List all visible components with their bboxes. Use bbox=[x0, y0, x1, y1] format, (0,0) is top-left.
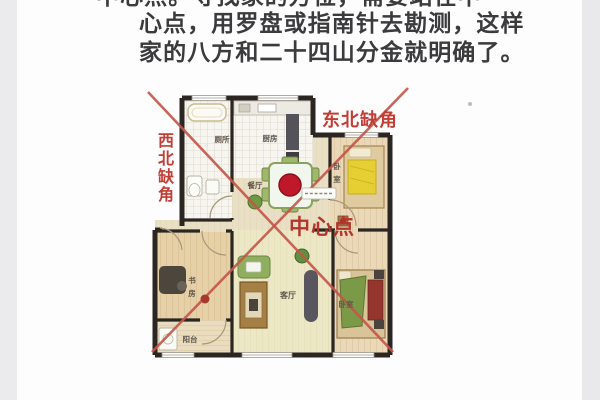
center-tag bbox=[302, 188, 336, 199]
window bbox=[242, 353, 292, 358]
label-northwest-missing: 北 bbox=[158, 149, 174, 168]
article-line-3: 家的八方和二十四山分金就明确了。 bbox=[139, 42, 525, 65]
floorplan-figure: 厕所 厨房 餐厅 卧 室 书 房 阳台 客厅 卧室 西 北 缺 角 东北缺角 中… bbox=[130, 80, 430, 370]
kitchen-sink bbox=[258, 104, 276, 112]
label-northeast-missing: 东北缺角 bbox=[322, 109, 398, 131]
tall-cabinet bbox=[304, 270, 318, 322]
coffee-table bbox=[246, 262, 261, 272]
window bbox=[192, 96, 226, 101]
window bbox=[258, 96, 298, 101]
room-label-bedroom-se: 卧室 bbox=[339, 299, 354, 309]
article-line-2: 心点，用罗盘或指南针去勘测，这样 bbox=[139, 13, 525, 36]
bed-se-runner bbox=[368, 280, 383, 320]
room-label-bedroom-ne: 卧 bbox=[333, 161, 341, 171]
page-right-margin-strip bbox=[582, 0, 600, 400]
room-label-balcony: 阳台 bbox=[183, 334, 198, 344]
diagonal-knot-dot bbox=[201, 295, 210, 304]
label-center-point: 中心点 bbox=[289, 215, 355, 239]
balcony-washer bbox=[159, 328, 177, 350]
bathtub bbox=[188, 104, 226, 121]
bed-ne-blanket bbox=[348, 160, 376, 194]
page-artifact-dot bbox=[468, 102, 472, 106]
label-northwest-missing: 西 bbox=[158, 131, 174, 150]
article-line-1-partial: 中心点。寻找家的方位，需要站在中 bbox=[96, 0, 482, 9]
room-label-study: 房 bbox=[188, 288, 196, 298]
wash-basin bbox=[206, 180, 219, 194]
kitchen-stove bbox=[239, 104, 250, 112]
page-left-margin-strip bbox=[0, 0, 17, 400]
center-point-dot bbox=[279, 174, 301, 196]
bedside-table-se bbox=[374, 320, 384, 329]
floorplan-svg: 厕所 厨房 餐厅 卧 室 书 房 阳台 客厅 卧室 西 北 缺 角 东北缺角 中… bbox=[130, 80, 430, 370]
label-northwest-missing: 角 bbox=[158, 185, 174, 204]
kitchen-cabinet-tall bbox=[286, 114, 299, 150]
tv-screen bbox=[249, 299, 258, 311]
window bbox=[333, 353, 374, 358]
room-label-kitchen: 厨房 bbox=[263, 133, 278, 143]
study-chair bbox=[177, 281, 187, 291]
label-northwest-missing: 缺 bbox=[158, 167, 175, 186]
room-label-bathroom: 厕所 bbox=[215, 134, 230, 144]
room-label-bedroom-ne: 室 bbox=[333, 174, 341, 184]
bedside-table-se bbox=[374, 270, 384, 279]
room-label-dining: 餐厅 bbox=[247, 180, 263, 190]
article-page: 中心点。寻找家的方位，需要站在中 心点，用罗盘或指南针去勘测，这样 家的八方和二… bbox=[0, 0, 600, 400]
room-label-living: 客厅 bbox=[279, 290, 296, 300]
room-label-study: 书 bbox=[188, 275, 196, 285]
window bbox=[162, 353, 194, 358]
bed-ne-pillow bbox=[349, 148, 371, 157]
toilet-bowl bbox=[189, 184, 200, 197]
